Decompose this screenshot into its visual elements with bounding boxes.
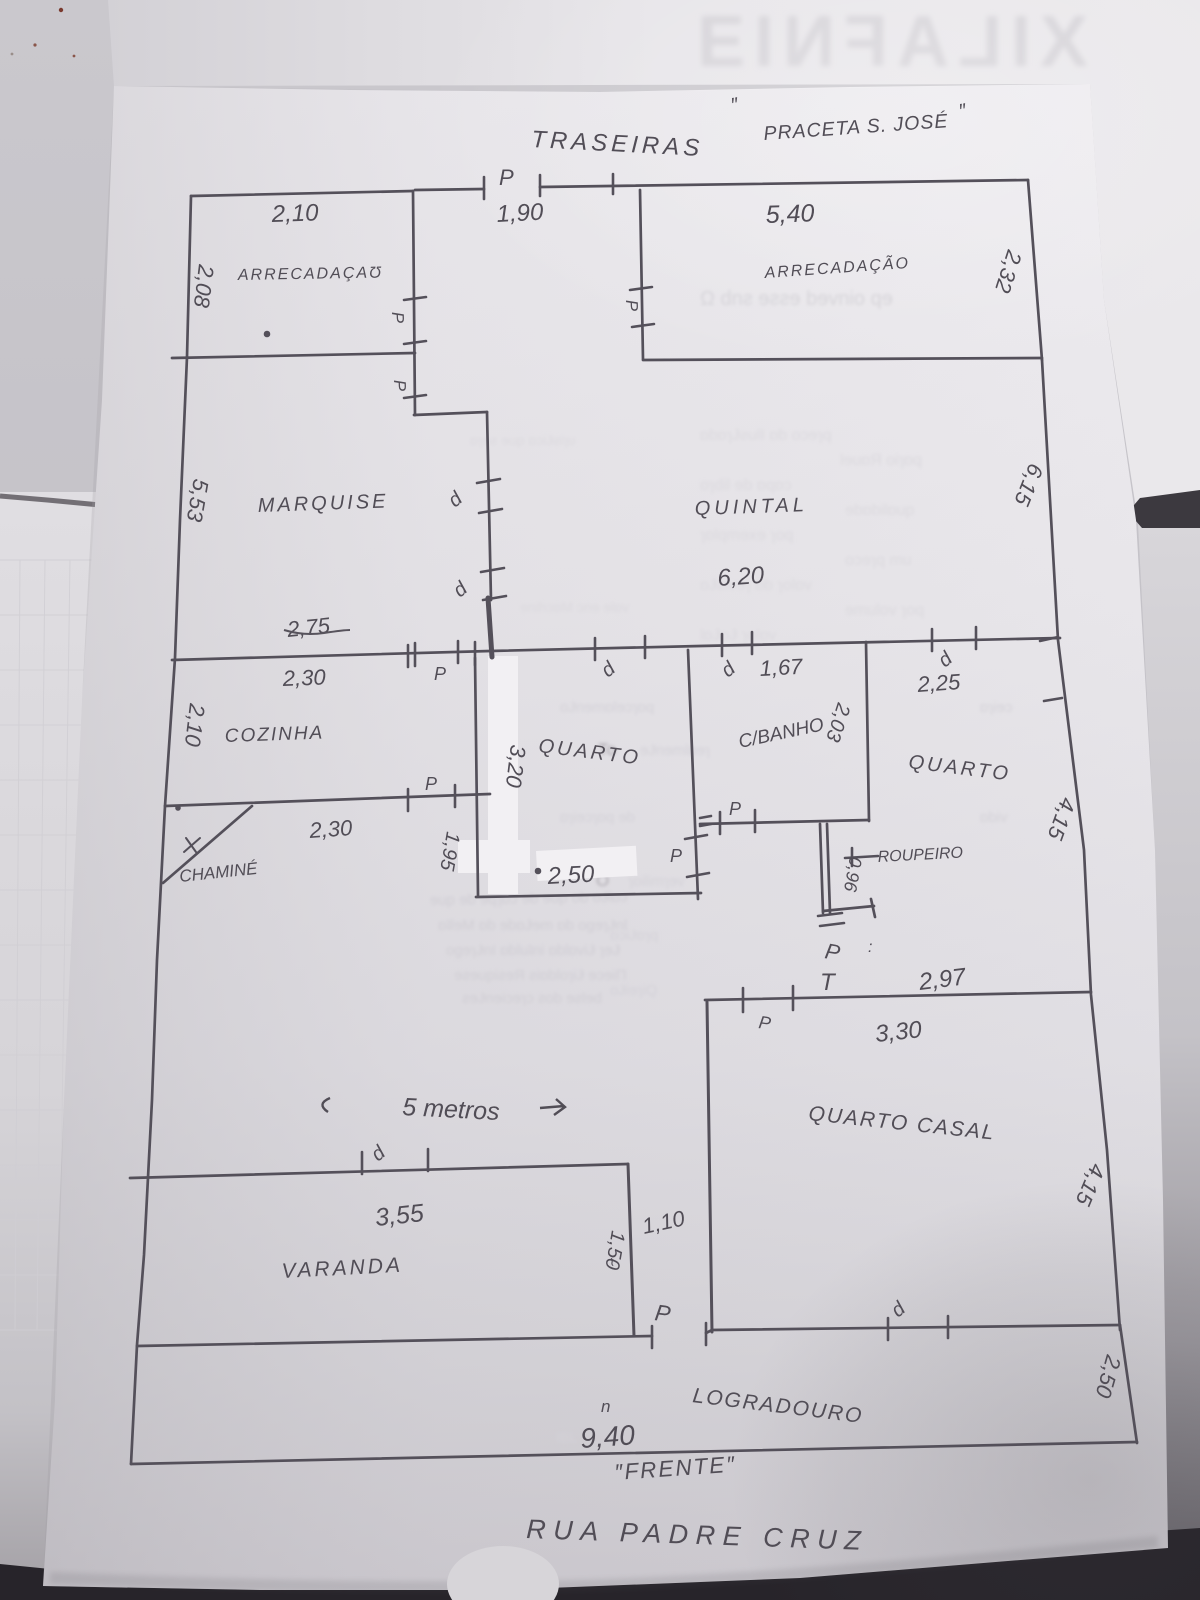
- svg-text:IBL: IBL: [556, 1429, 577, 1445]
- svg-text:T: T: [820, 969, 837, 996]
- svg-text:ɒɿɘƨ ɘup ɒɔiɈƨiɿυ: ɒɿɘƨ ɘup ɒɔiɈƨiɿυ: [470, 432, 576, 448]
- svg-text:oɿdil ɘb ɒqɒɔ: oɿdil ɘb ɒqɒɔ: [700, 477, 792, 494]
- svg-text:ɘɈnɘmlɒɘɿ: ɘɈnɘmlɒɘɿ: [640, 742, 710, 759]
- svg-text:2,30: 2,30: [281, 664, 326, 691]
- svg-text:oɈiɘɿiQ: oɈiɘɿiQ: [610, 982, 658, 999]
- svg-text:P: P: [622, 299, 641, 312]
- svg-text:3,20: 3,20: [501, 743, 531, 789]
- svg-text:P: P: [388, 311, 407, 324]
- svg-text:P: P: [425, 774, 437, 794]
- svg-text:2,25: 2,25: [916, 669, 962, 697]
- svg-text:n: n: [601, 1397, 610, 1416]
- svg-text:9,40: 9,40: [579, 1419, 636, 1454]
- svg-text:2,50: 2,50: [546, 861, 596, 890]
- svg-text:COZINHA: COZINHA: [224, 723, 324, 747]
- svg-text:ɒʇlɘM ɒb ɘbɒɈɘm ɒb ogɘɿɈnl: ɒʇlɘM ɒb ɘbɒɈɘm ɒb ogɘɿɈnl: [438, 917, 627, 934]
- svg-text::: :: [868, 939, 872, 956]
- svg-text:ɘbɒbilɒup: ɘbɒbilɒup: [845, 502, 915, 519]
- svg-text:oɔɘɿq mu: oɔɘɿq mu: [845, 552, 912, 569]
- svg-text:ogɘɿɈnI ɒbluʇni ɒblɒviɈ ɿɘɈ: ogɘɿɈnI ɒbluʇni ɒblɒviɈ ɿɘɈ: [446, 942, 621, 959]
- svg-text:1,90: 1,90: [496, 199, 545, 228]
- svg-text:lɒɈoɈ ɿolɒv: lɒɈoɈ ɿolɒv: [700, 627, 776, 644]
- svg-text:ɘnihɔɒM ɔnɘ ɘlɒv: ɘnihɔɒM ɔnɘ ɘlɒv: [520, 599, 629, 615]
- svg-text:ɘup ɘb ɘqɿɒɔ ɘb ɘup ob oɈlɒɔ: ɘup ɘb ɘqɿɒɔ ɘb ɘup ob oɈlɒɔ: [430, 889, 628, 909]
- svg-text:P: P: [434, 664, 446, 684]
- svg-text:3,30: 3,30: [874, 1016, 924, 1048]
- svg-text:P: P: [729, 799, 741, 819]
- svg-text:Ω dnƨ ɘƨƨɘ bɘvnio qɘ: Ω dnƨ ɘƨƨɘ bɘvnio qɘ: [700, 288, 893, 310]
- svg-text:ɘƨɘupiƨɘЯ ƨiɒbloɿiɈ ɘɔɘiП: ɘƨɘupiƨɘЯ ƨiɒbloɿiɈ ɘɔɘiП: [454, 967, 627, 984]
- svg-text:oɈnɘmɒlɘɔɿɒq: oɈnɘmɒlɘɔɿɒq: [560, 699, 654, 716]
- svg-text:5,40: 5,40: [765, 199, 815, 229]
- svg-text:MARQUISE: MARQUISE: [257, 490, 388, 517]
- svg-text:ƨɘɈnɘiɔɘɿɔ ƨob ɘƨlɘd: ƨɘɈnɘiɔɘɿɔ ƨob ɘƨlɘd: [462, 990, 602, 1007]
- svg-text:2,10: 2,10: [270, 199, 319, 228]
- svg-text:2,75: 2,75: [285, 613, 332, 643]
- svg-text:ARRECADAÇAƱ: ARRECADAÇAƱ: [237, 264, 384, 284]
- svg-text:1,67: 1,67: [759, 654, 804, 681]
- svg-text:P: P: [390, 379, 409, 392]
- svg-text:lɘuɒЯ oiɿɒq: lɘuɒЯ oiɿɒq: [840, 452, 922, 469]
- svg-text:ɒɿiɘɔ: ɒɿiɘɔ: [980, 699, 1013, 716]
- svg-text:5 metros: 5 metros: [402, 1093, 501, 1126]
- svg-text:2,30: 2,30: [308, 815, 354, 843]
- svg-text:P: P: [670, 846, 682, 866]
- svg-text:QUINTAL: QUINTAL: [694, 494, 808, 520]
- svg-text:ɒbiv: ɒbiv: [980, 809, 1008, 826]
- svg-text:P: P: [499, 165, 514, 190]
- svg-text:ɒbɒɿɈƨulI ɒb oɔɘɿq: ɒbɒɿɈƨulI ɒb oɔɘɿq: [700, 427, 832, 444]
- svg-text:3,55: 3,55: [374, 1199, 425, 1232]
- svg-text:ɘmulov ɿoq: ɘmulov ɿoq: [845, 602, 924, 619]
- svg-text:ɿɒlqmɘxɘ ɿoq: ɿɒlqmɘxɘ ɿoq: [700, 527, 793, 544]
- svg-text:ɒɿiɘɔɿɒq ɘb: ɒɿiɘɔɿɒq ɘb: [560, 809, 635, 826]
- svg-text:6,20: 6,20: [717, 562, 766, 592]
